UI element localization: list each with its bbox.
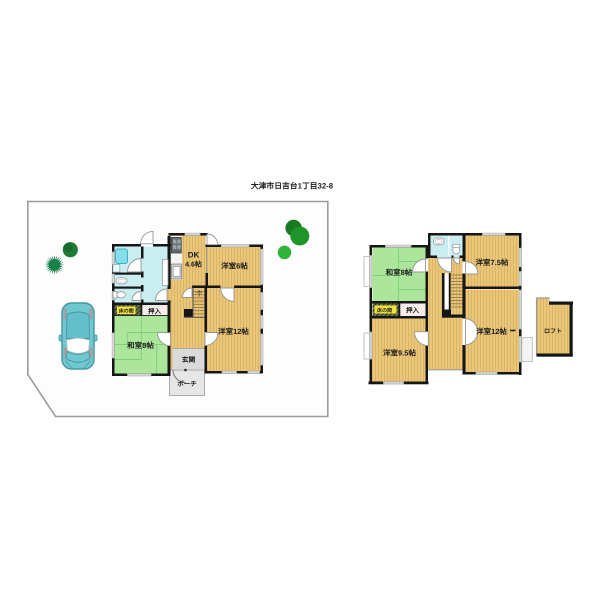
svg-text:床の間: 床の間 bbox=[119, 308, 134, 315]
svg-text:4.6帖: 4.6帖 bbox=[185, 260, 202, 269]
svg-text:洋室12帖: 洋室12帖 bbox=[476, 327, 507, 336]
svg-text:大津市日吉台1丁目32-8: 大津市日吉台1丁目32-8 bbox=[251, 182, 334, 191]
svg-text:ロフト: ロフト bbox=[544, 328, 562, 335]
svg-text:和室8帖: 和室8帖 bbox=[126, 341, 154, 350]
svg-text:ポーチ: ポーチ bbox=[177, 380, 197, 388]
svg-text:洋室12帖: 洋室12帖 bbox=[218, 327, 249, 336]
svg-text:玄関: 玄関 bbox=[182, 356, 196, 364]
svg-text:押入: 押入 bbox=[148, 307, 162, 315]
svg-text:床の間: 床の間 bbox=[377, 307, 392, 314]
svg-text:洋室9.5帖: 洋室9.5帖 bbox=[383, 348, 416, 357]
svg-text:DK: DK bbox=[188, 251, 200, 260]
svg-text:押入: 押入 bbox=[406, 307, 420, 315]
svg-text:洋室7.5帖: 洋室7.5帖 bbox=[476, 258, 509, 267]
svg-text:洋室6帖: 洋室6帖 bbox=[221, 261, 248, 270]
svg-text:和室8帖: 和室8帖 bbox=[385, 268, 413, 277]
